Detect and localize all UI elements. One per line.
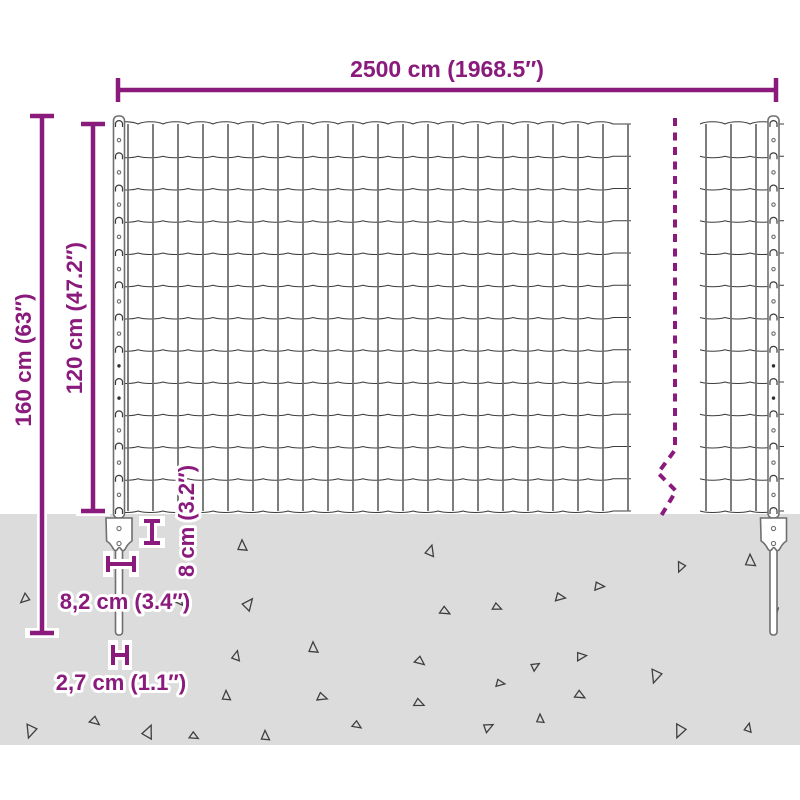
- post-hole: [772, 493, 775, 496]
- post-hole: [772, 235, 775, 238]
- post-hole: [117, 138, 120, 141]
- post-wire-clip: [116, 250, 123, 256]
- post-wire-clip: [770, 121, 777, 127]
- anchor-plate-hole: [771, 541, 775, 545]
- post-hole: [117, 396, 120, 399]
- post-wire-clip: [116, 346, 123, 352]
- post-wire-clip: [770, 282, 777, 288]
- panel-break-line: [658, 118, 676, 516]
- dim-anchor-height-label: 8 cm (3.2″): [174, 465, 199, 577]
- post-hole: [117, 267, 120, 270]
- anchor-plate-hole: [117, 541, 121, 545]
- post-wire-clip: [770, 217, 777, 223]
- post-hole: [117, 203, 120, 206]
- mesh-wire-horizontal: [113, 122, 631, 124]
- post-hole: [117, 300, 120, 303]
- post-wire-clip: [116, 508, 123, 514]
- post-ground-spike: [770, 540, 777, 635]
- post-hole: [117, 364, 120, 367]
- post-wire-clip: [116, 185, 123, 191]
- post-wire-clip: [770, 411, 777, 417]
- fence-posts: [106, 116, 787, 551]
- post-wire-clip: [770, 250, 777, 256]
- post-hole: [772, 429, 775, 432]
- post-wire-clip: [116, 217, 123, 223]
- dim-width: 2500 cm (1968.5″): [118, 56, 776, 102]
- post-wire-clip: [116, 282, 123, 288]
- post-wire-clip: [770, 475, 777, 481]
- post-wire-clip: [770, 379, 777, 385]
- fence-mesh: [113, 122, 784, 513]
- post-wire-clip: [770, 314, 777, 320]
- post-hole: [772, 203, 775, 206]
- post-hole: [772, 138, 775, 141]
- dim-width-label: 2500 cm (1968.5″): [350, 56, 544, 82]
- post-hole: [772, 364, 775, 367]
- fence-dimension-diagram: 2500 cm (1968.5″) 160 cm (63″) 120 cm (4…: [0, 0, 800, 800]
- post-wire-clip: [770, 508, 777, 514]
- post-hole: [772, 267, 775, 270]
- post-wire-clip: [770, 185, 777, 191]
- anchor-plate-hole: [117, 526, 121, 530]
- post-hole: [117, 332, 120, 335]
- post-wire-clip: [770, 346, 777, 352]
- post-ground-spike: [116, 540, 123, 635]
- post-wire-clip: [116, 475, 123, 481]
- fence-dimension-diagram-page: 2500 cm (1968.5″) 160 cm (63″) 120 cm (4…: [0, 0, 800, 800]
- post-wire-clip: [116, 411, 123, 417]
- post-wire-clip: [770, 443, 777, 449]
- post-hole: [772, 461, 775, 464]
- post-wire-clip: [116, 121, 123, 127]
- post-hole: [772, 300, 775, 303]
- post-wire-clip: [116, 153, 123, 159]
- post-wire-clip: [770, 153, 777, 159]
- post-hole: [117, 171, 120, 174]
- dim-total-height-label: 160 cm (63″): [11, 293, 36, 426]
- post-hole: [117, 235, 120, 238]
- dim-fence-height: 120 cm (47.2″): [62, 124, 105, 511]
- post-hole: [772, 171, 775, 174]
- dim-fence-height-label: 120 cm (47.2″): [62, 242, 87, 394]
- anchor-plate-hole: [771, 526, 775, 530]
- post-hole: [117, 461, 120, 464]
- post-wire-clip: [116, 314, 123, 320]
- post-wire-clip: [116, 379, 123, 385]
- dim-post-width-label: 2,7 cm (1.1″): [56, 670, 186, 695]
- post-wire-clip: [116, 443, 123, 449]
- post-hole: [117, 493, 120, 496]
- post-hole: [772, 396, 775, 399]
- dim-anchor-width-label: 8,2 cm (3.4″): [60, 589, 190, 614]
- post-hole: [772, 332, 775, 335]
- post-hole: [117, 429, 120, 432]
